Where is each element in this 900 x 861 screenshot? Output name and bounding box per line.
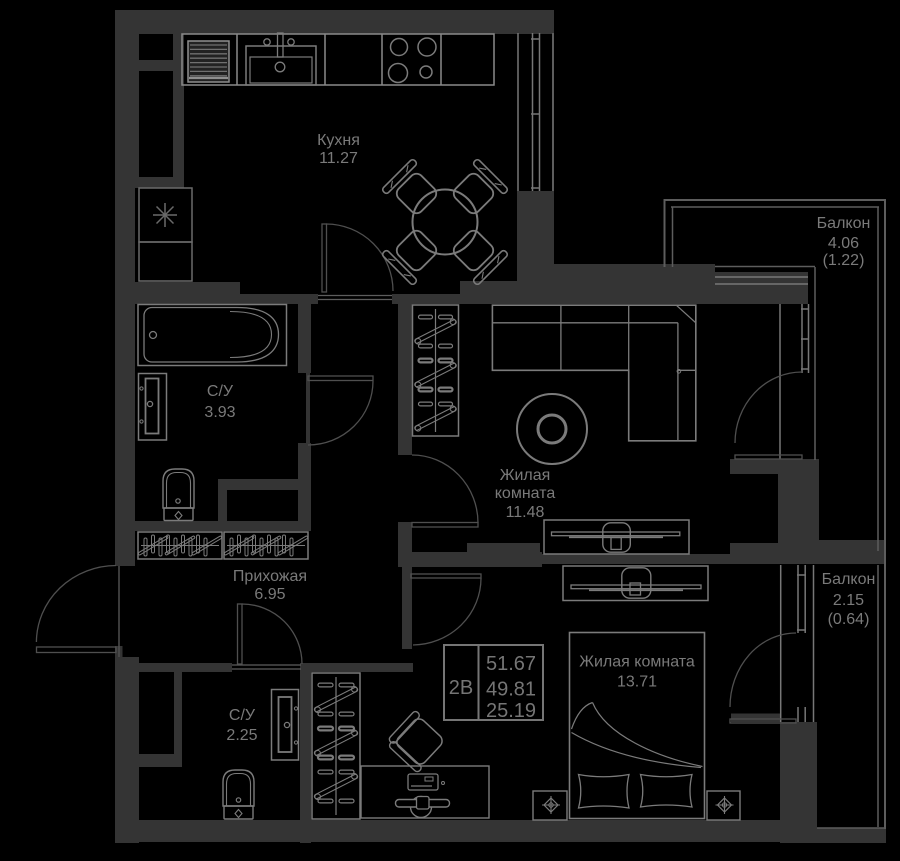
svg-text:11.48: 11.48 — [506, 504, 545, 521]
svg-text:С/У: С/У — [229, 707, 256, 724]
svg-text:2.15: 2.15 — [833, 592, 864, 609]
svg-text:2В: 2В — [449, 677, 473, 699]
svg-text:комната: комната — [495, 485, 556, 502]
svg-text:С/У: С/У — [207, 383, 234, 400]
svg-text:3.93: 3.93 — [204, 404, 235, 421]
svg-text:Балкон: Балкон — [822, 571, 876, 588]
svg-text:49.81: 49.81 — [486, 679, 536, 701]
svg-text:(1.22): (1.22) — [823, 252, 865, 269]
svg-text:Жилая: Жилая — [500, 467, 551, 484]
svg-text:Кухня: Кухня — [317, 132, 360, 149]
svg-text:25.19: 25.19 — [486, 700, 536, 722]
svg-text:51.67: 51.67 — [486, 653, 536, 675]
svg-text:Балкон: Балкон — [817, 215, 871, 232]
svg-text:(0.64): (0.64) — [828, 611, 870, 628]
svg-text:11.27: 11.27 — [319, 150, 358, 167]
svg-text:Жилая комната: Жилая комната — [579, 654, 695, 671]
svg-text:13.71: 13.71 — [617, 674, 657, 691]
svg-text:4.06: 4.06 — [828, 235, 859, 252]
svg-text:Прихожая: Прихожая — [233, 568, 307, 585]
svg-text:6.95: 6.95 — [254, 586, 285, 603]
svg-text:2.25: 2.25 — [226, 727, 257, 744]
